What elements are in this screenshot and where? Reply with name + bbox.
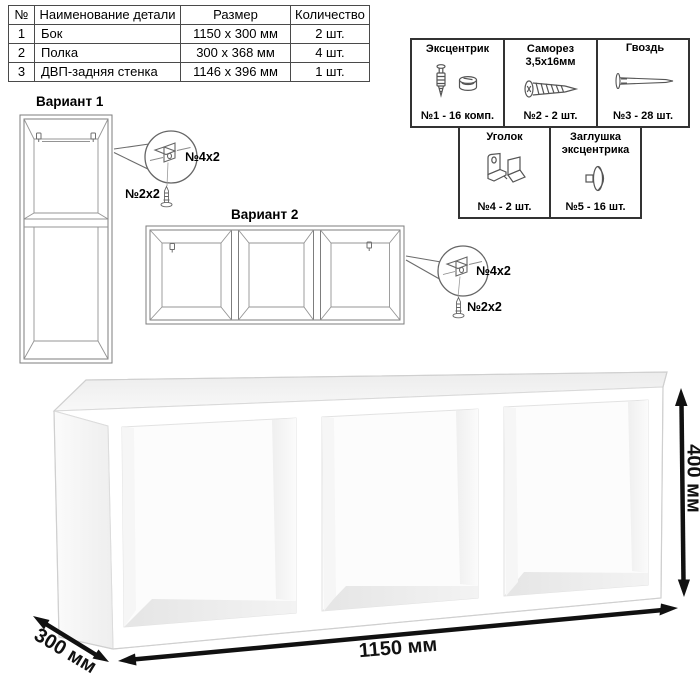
shelf-compartment — [322, 409, 478, 611]
variant2-drawing — [146, 226, 404, 324]
screw-icon — [453, 298, 464, 318]
variant1-label: Вариант 1 — [36, 94, 103, 109]
shelf-3d-render — [54, 372, 667, 649]
assembly-diagram-svg — [0, 0, 700, 690]
screw-icon — [161, 187, 172, 207]
variant1-bracket-note: №4х2 — [185, 150, 220, 164]
assembly-instruction-sheet: № Наименование детали Размер Количество … — [0, 0, 700, 690]
variant2-label: Вариант 2 — [231, 207, 298, 222]
variant1-screw-note: №2х2 — [125, 187, 160, 201]
dimension-height-label: 400 мм — [682, 419, 700, 539]
variant2-bracket-note: №4х2 — [476, 264, 511, 278]
shelf-compartment — [504, 400, 648, 596]
variant1-drawing — [20, 115, 112, 363]
shelf-compartment — [122, 418, 296, 627]
variant2-screw-note: №2х2 — [467, 300, 502, 314]
